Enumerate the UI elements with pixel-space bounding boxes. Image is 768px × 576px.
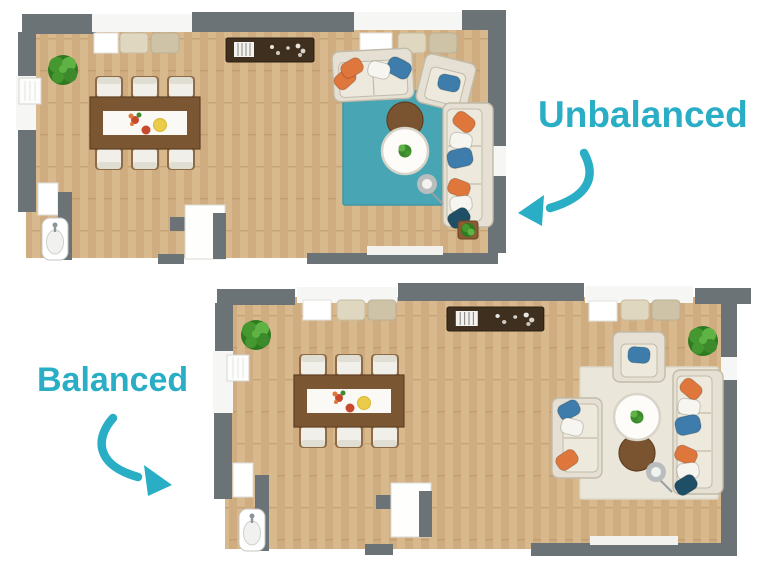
comparison-illustration: Unbalanced xyxy=(0,0,768,576)
radiator xyxy=(19,78,41,104)
pillow-white xyxy=(677,398,701,417)
dining-set xyxy=(90,76,200,170)
plant-side-table xyxy=(458,221,478,239)
low-window-sill xyxy=(590,536,678,545)
radiator xyxy=(227,355,249,381)
kitchen-corner xyxy=(38,183,72,260)
potted-plant xyxy=(241,320,271,350)
kitchen-sink xyxy=(239,509,265,551)
arrow-curve xyxy=(550,153,590,208)
kitchen-sink xyxy=(42,218,68,260)
pillow-white xyxy=(449,132,473,151)
potted-plant xyxy=(48,55,78,85)
pillow-blue xyxy=(627,346,650,363)
arrow-unbalanced xyxy=(510,145,610,237)
low-window-sill xyxy=(367,246,443,255)
potted-plant xyxy=(688,326,718,356)
floorplan-balanced xyxy=(213,283,765,565)
dining-set xyxy=(294,354,404,448)
sideboard xyxy=(226,38,314,62)
label-unbalanced: Unbalanced xyxy=(538,96,748,133)
arrow-curve xyxy=(102,418,138,477)
sideboard xyxy=(447,307,544,331)
arrow-head xyxy=(144,465,172,496)
coffee-table xyxy=(614,394,660,440)
label-balanced: Balanced xyxy=(37,363,188,397)
arrow-head xyxy=(518,195,544,226)
arrow-balanced xyxy=(90,408,190,500)
coffee-table xyxy=(382,128,428,174)
floorplan-unbalanced xyxy=(8,6,514,264)
